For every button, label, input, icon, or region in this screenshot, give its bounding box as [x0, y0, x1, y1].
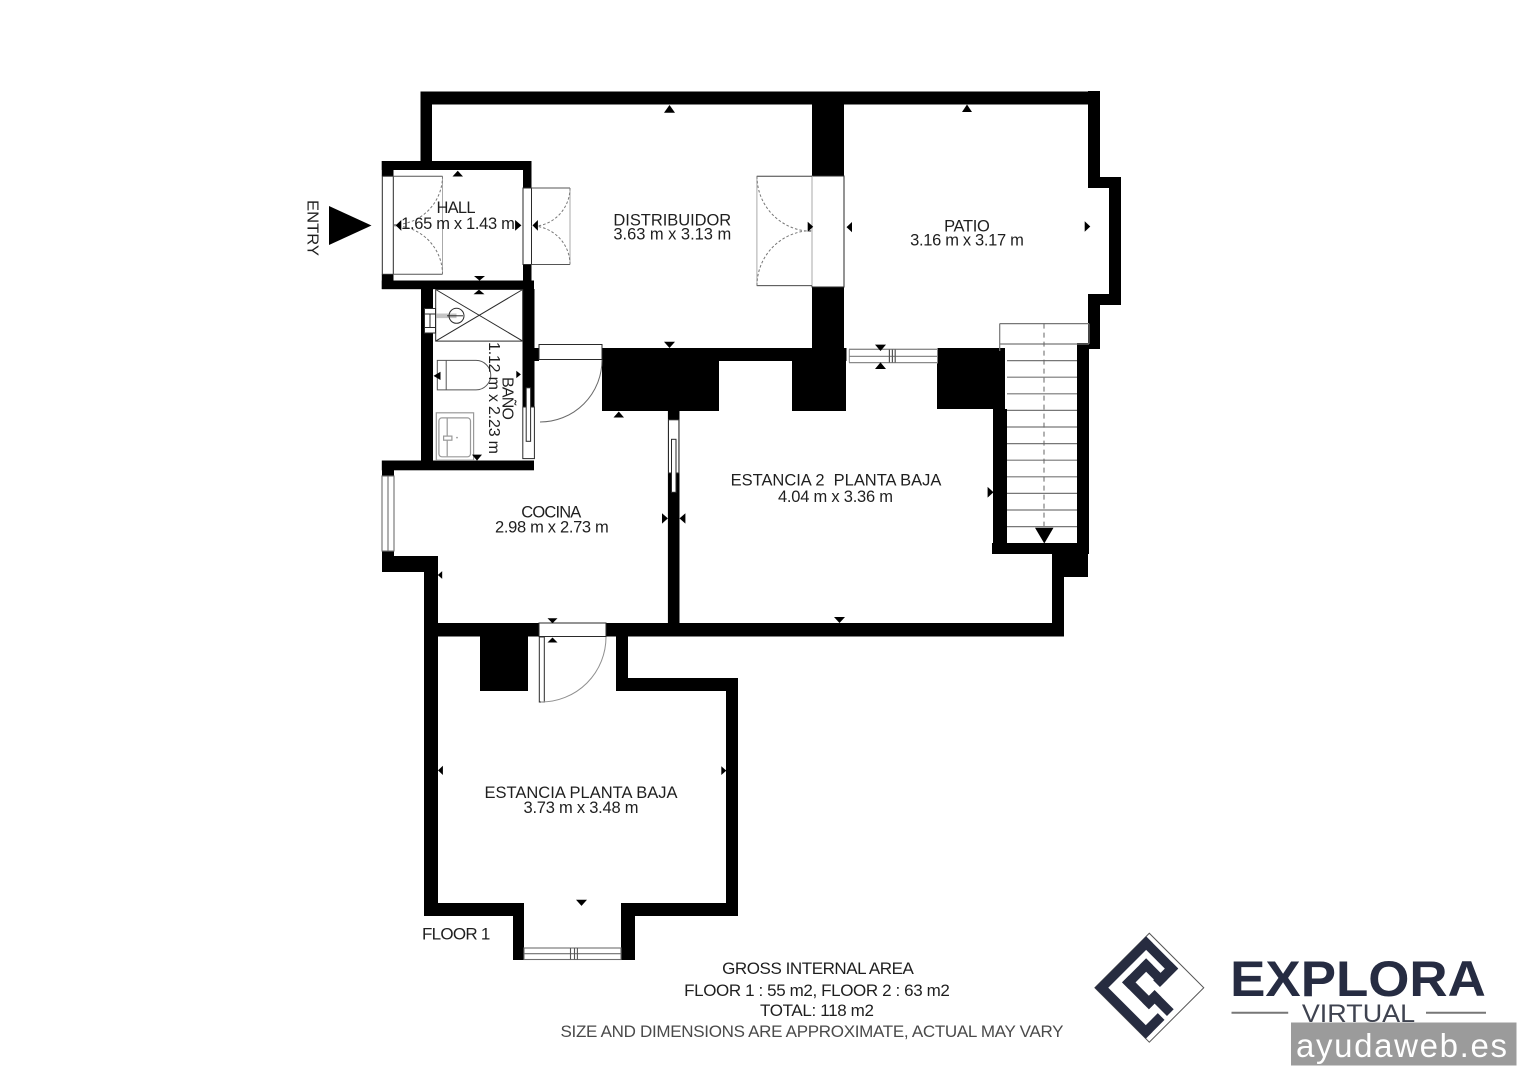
svg-text:1.12 m x 2.23 m: 1.12 m x 2.23 m — [485, 342, 502, 454]
svg-text:ENTRY: ENTRY — [304, 200, 321, 256]
svg-text:3.16 m x 3.17 m: 3.16 m x 3.17 m — [910, 231, 1024, 249]
svg-text:VIRTUAL: VIRTUAL — [1302, 1000, 1415, 1028]
svg-text:4.04 m x 3.36 m: 4.04 m x 3.36 m — [778, 488, 893, 506]
svg-text:FLOOR 1 : 55 m2, FLOOR 2 : 63: FLOOR 1 : 55 m2, FLOOR 2 : 63 m2 — [684, 981, 950, 1000]
svg-text:EXPLORA: EXPLORA — [1230, 951, 1486, 1007]
svg-text:TOTAL: 118 m2: TOTAL: 118 m2 — [760, 1001, 874, 1020]
svg-text:SIZE AND DIMENSIONS ARE APPROX: SIZE AND DIMENSIONS ARE APPROXIMATE, ACT… — [561, 1022, 1064, 1041]
svg-text:FLOOR 1: FLOOR 1 — [422, 925, 490, 944]
svg-text:1.65 m x 1.43 m: 1.65 m x 1.43 m — [401, 215, 515, 233]
svg-text:3.63 m x 3.13 m: 3.63 m x 3.13 m — [613, 226, 731, 244]
svg-text:3.73 m x 3.48 m: 3.73 m x 3.48 m — [524, 799, 639, 817]
svg-text:2.98 m x 2.73 m: 2.98 m x 2.73 m — [495, 519, 609, 537]
svg-text:GROSS INTERNAL AREA: GROSS INTERNAL AREA — [722, 959, 914, 978]
svg-text:ayudaweb.es: ayudaweb.es — [1296, 1027, 1507, 1064]
